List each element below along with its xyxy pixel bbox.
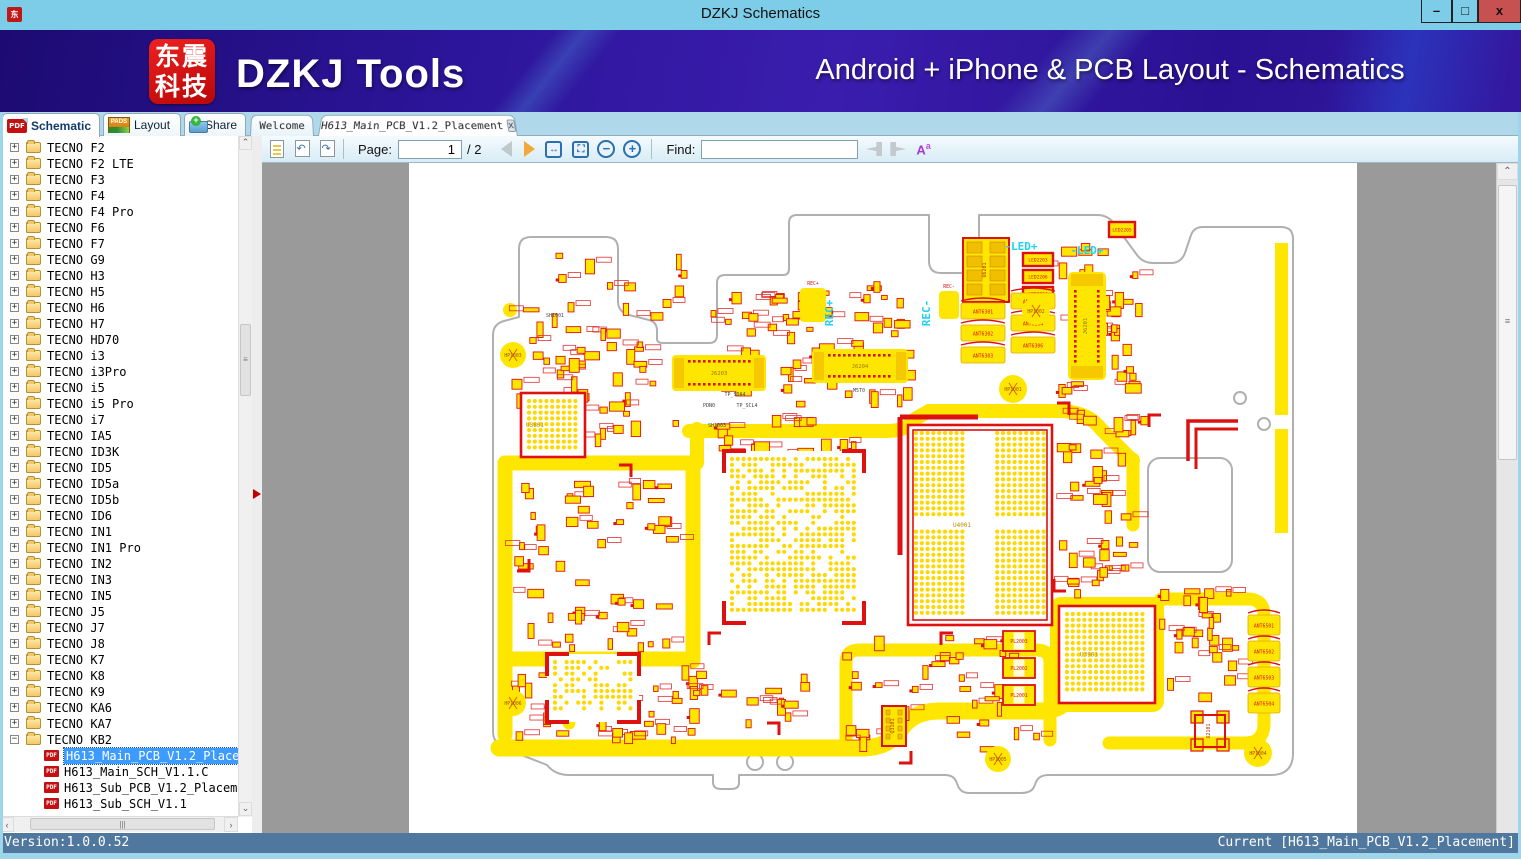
doc-tab-welcome[interactable]: Welcome <box>250 115 314 136</box>
scroll-right-icon[interactable]: › <box>224 817 238 832</box>
tab-layout[interactable]: PADS Layout <box>103 113 181 136</box>
tree-folder-item[interactable]: +TECNO i3Pro <box>0 364 238 380</box>
folder-icon <box>26 494 41 505</box>
svg-text:ANT6502: ANT6502 <box>1254 650 1274 656</box>
expand-icon[interactable]: + <box>10 351 19 360</box>
folder-icon <box>26 302 41 313</box>
tree-folder-item[interactable]: +TECNO IN2 <box>0 556 238 572</box>
expand-icon[interactable]: + <box>10 223 19 232</box>
rotate-right-icon[interactable] <box>317 139 337 159</box>
pdf-viewer-area[interactable]: U4001U3901U3801J6203J6204J6201U6201LED22… <box>262 163 1496 833</box>
folder-icon <box>26 734 41 745</box>
folder-icon <box>26 542 41 553</box>
folder-label: TECNO i5 <box>47 380 105 396</box>
tree-file-item[interactable]: PDFH613_Main_SCH_V1.1.C <box>0 764 238 780</box>
tree-folder-item[interactable]: −TECNO KB2 <box>0 732 238 748</box>
svg-text:-LED+: -LED+ <box>1070 244 1103 257</box>
svg-text:ANT6303: ANT6303 <box>973 354 993 360</box>
tree-folder-item[interactable]: +TECNO H5 <box>0 284 238 300</box>
svg-text:ANT6306: ANT6306 <box>1023 344 1043 350</box>
tree-folder-item[interactable]: +TECNO F3 <box>0 172 238 188</box>
folder-icon <box>26 670 41 681</box>
expand-icon[interactable]: + <box>10 655 19 664</box>
folder-label: TECNO F4 <box>47 188 105 204</box>
svg-text:LED2203: LED2203 <box>1028 258 1048 264</box>
zoom-out-button[interactable]: − <box>597 140 615 158</box>
expand-icon[interactable]: + <box>10 527 19 536</box>
folder-label: TECNO J5 <box>47 604 105 620</box>
tab-schematic[interactable]: PDF Schematic <box>2 113 100 137</box>
model-tree-panel: +TECNO F2+TECNO F2 LTE+TECNO F3+TECNO F4… <box>0 136 252 833</box>
tree-folder-item[interactable]: +TECNO i5 <box>0 380 238 396</box>
brand-title: DZKJ Tools <box>236 52 465 97</box>
minimize-button[interactable]: – <box>1421 0 1452 23</box>
folder-icon <box>26 558 41 569</box>
folder-label: TECNO J8 <box>47 636 105 652</box>
sidebar-vertical-scrollbar[interactable]: ⌃ ≡ ⌄ <box>238 136 252 817</box>
expand-icon[interactable]: + <box>10 559 19 568</box>
folder-icon <box>26 254 41 265</box>
selected-file-label: H613_Main_PCB_V1.2_Placement <box>64 748 252 764</box>
tab-strip: PDF Schematic PADS Layout + Share Welcom… <box>0 112 1521 136</box>
brand-banner: 东震科技 DZKJ Tools Android + iPhone & PCB L… <box>0 30 1521 112</box>
tree-folder-item[interactable]: +TECNO ID3K <box>0 444 238 460</box>
svg-text:U3801: U3801 <box>526 422 544 429</box>
folder-icon <box>26 286 41 297</box>
svg-text:PDN0: PDN0 <box>703 403 715 409</box>
folder-label: TECNO K9 <box>47 684 105 700</box>
tree-folder-item[interactable]: +TECNO F2 LTE <box>0 156 238 172</box>
expand-icon[interactable]: + <box>10 543 19 552</box>
tree-folder-item[interactable]: +TECNO IN5 <box>0 588 238 604</box>
folder-label: TECNO H3 <box>47 268 105 284</box>
folder-label: TECNO K8 <box>47 668 105 684</box>
folder-label: TECNO F4 Pro <box>47 204 134 220</box>
tree-folder-item[interactable]: +TECNO H7 <box>0 316 238 332</box>
tree-folder-item[interactable]: +TECNO F4 Pro <box>0 204 238 220</box>
tree-folder-item[interactable]: +TECNO IA5 <box>0 428 238 444</box>
tree-folder-item[interactable]: +TECNO ID5 <box>0 460 238 476</box>
expand-icon[interactable]: + <box>10 143 19 152</box>
folder-label: TECNO G9 <box>47 252 105 268</box>
expand-icon[interactable]: + <box>10 255 19 264</box>
find-previous-icon[interactable] <box>866 142 882 156</box>
expand-icon[interactable]: + <box>10 159 19 168</box>
doc-tab-label: Welcome <box>259 119 305 132</box>
tree-folder-item[interactable]: +TECNO IN3 <box>0 572 238 588</box>
expand-icon[interactable]: + <box>10 239 19 248</box>
title-bar[interactable]: 东 DZKJ Schematics – □ x <box>0 0 1521 30</box>
svg-text:SH1001: SH1001 <box>546 313 564 319</box>
doc-tab-current[interactable]: H613_Main_PCB_V1.2_Placement x <box>318 115 518 136</box>
folder-icon <box>26 446 41 457</box>
pdf-file-icon: PDF <box>44 782 59 793</box>
file-label: H613_Sub_SCH_V1.1 <box>64 796 187 812</box>
folder-icon <box>26 430 41 441</box>
tree-folder-item[interactable]: +TECNO F6 <box>0 220 238 236</box>
tree-folder-item[interactable]: +TECNO IN1 <box>0 524 238 540</box>
svg-text:ANT6301: ANT6301 <box>973 310 993 316</box>
folder-label: TECNO HD70 <box>47 332 119 348</box>
tree-folder-item[interactable]: +TECNO F4 <box>0 188 238 204</box>
expand-icon[interactable]: + <box>10 415 19 424</box>
tree-folder-item[interactable]: +TECNO J5 <box>0 604 238 620</box>
tree-folder-item[interactable]: +TECNO ID5b <box>0 492 238 508</box>
folder-label: TECNO ID5a <box>47 476 119 492</box>
svg-text:ANT6501: ANT6501 <box>1254 624 1274 630</box>
svg-text:ANT6302: ANT6302 <box>973 332 993 338</box>
tree-file-item[interactable]: PDFH613_Sub_PCB_V1.2_Placement <box>0 780 238 796</box>
previous-page-button[interactable] <box>501 141 512 157</box>
tree-folder-item[interactable]: +TECNO i5 Pro <box>0 396 238 412</box>
pdf-file-icon: PDF <box>44 766 59 777</box>
folder-label: TECNO ID6 <box>47 508 112 524</box>
tree-folder-item[interactable]: +TECNO J8 <box>0 636 238 652</box>
svg-text:HP1005: HP1005 <box>989 757 1006 763</box>
tree-folder-item[interactable]: +TECNO F2 <box>0 140 238 156</box>
folder-icon <box>26 350 41 361</box>
svg-text:SH1003: SH1003 <box>708 423 726 429</box>
expand-icon[interactable]: + <box>10 271 19 280</box>
fit-width-icon[interactable]: ↔ <box>545 141 562 158</box>
folder-icon <box>26 638 41 649</box>
tree-file-item[interactable]: PDFH613_Sub_SCH_V1.1 <box>0 796 238 812</box>
folder-icon <box>26 462 41 473</box>
rotate-left-icon[interactable] <box>292 139 312 159</box>
tree-folder-item[interactable]: +TECNO J7 <box>0 620 238 636</box>
file-label: H613_Sub_PCB_V1.2_Placement <box>64 780 252 796</box>
match-case-icon[interactable]: Aa <box>916 141 930 157</box>
folder-icon <box>26 526 41 537</box>
folder-label: TECNO H7 <box>47 316 105 332</box>
expand-icon[interactable]: + <box>10 623 19 632</box>
tree-folder-item[interactable]: +TECNO F7 <box>0 236 238 252</box>
folder-icon <box>26 142 41 153</box>
folder-icon <box>26 590 41 601</box>
tree-folder-item[interactable]: +TECNO IN1 Pro <box>0 540 238 556</box>
window-border <box>0 112 3 853</box>
expand-icon[interactable]: + <box>10 367 19 376</box>
tree-folder-item[interactable]: +TECNO H6 <box>0 300 238 316</box>
pdf-icon: PDF <box>7 119 27 133</box>
folder-icon <box>26 382 41 393</box>
folder-icon <box>26 414 41 425</box>
next-page-button[interactable] <box>524 141 535 157</box>
svg-text:ANT6503: ANT6503 <box>1254 676 1274 682</box>
folder-label: TECNO F7 <box>47 236 105 252</box>
folder-label: TECNO ID3K <box>47 444 119 460</box>
tree-folder-item[interactable]: +TECNO H3 <box>0 268 238 284</box>
folder-icon <box>26 318 41 329</box>
folder-label: TECNO KA7 <box>47 716 112 732</box>
folder-icon <box>26 334 41 345</box>
tab-label: Layout <box>134 118 170 132</box>
folder-label: TECNO i7 <box>47 412 105 428</box>
svg-text:Q3101: Q3101 <box>890 718 896 733</box>
expand-icon[interactable]: + <box>10 319 19 328</box>
svg-text:PL2001: PL2001 <box>1010 693 1027 699</box>
svg-text:REC-: REC- <box>943 284 955 290</box>
scroll-down-icon[interactable]: ⌄ <box>239 802 252 816</box>
folder-icon <box>26 238 41 249</box>
find-next-icon[interactable] <box>890 142 906 156</box>
svg-text:M5T0: M5T0 <box>853 388 865 394</box>
version-text: Version:1.0.0.52 <box>4 833 129 853</box>
dzkj-logo: 东震科技 <box>149 39 215 104</box>
tree-folder-item[interactable]: +TECNO ID5a <box>0 476 238 492</box>
svg-text:J6204: J6204 <box>852 364 869 370</box>
folder-label: TECNO F6 <box>47 220 105 236</box>
svg-text:X2101: X2101 <box>1206 723 1212 738</box>
expand-icon[interactable]: + <box>10 511 19 520</box>
tree-folder-item[interactable]: +TECNO K8 <box>0 668 238 684</box>
folder-icon <box>26 510 41 521</box>
folder-label: TECNO F3 <box>47 172 105 188</box>
find-input[interactable] <box>701 140 858 159</box>
scroll-up-icon[interactable]: ⌃ <box>1497 163 1518 180</box>
expand-icon[interactable]: + <box>10 719 19 728</box>
expand-icon[interactable]: + <box>10 591 19 600</box>
folder-label: TECNO i5 Pro <box>47 396 134 412</box>
svg-text:REC+: REC+ <box>823 299 836 326</box>
svg-text:HP1006: HP1006 <box>504 701 521 707</box>
tree-folder-item[interactable]: +TECNO KA6 <box>0 700 238 716</box>
expand-icon[interactable]: + <box>10 191 19 200</box>
folder-icon <box>26 718 41 729</box>
pdf-file-icon: PDF <box>44 750 59 761</box>
zoom-in-button[interactable]: + <box>623 140 641 158</box>
page-label: Page: <box>358 142 392 157</box>
single-page-icon[interactable] <box>267 139 287 159</box>
tree-folder-item[interactable]: +TECNO G9 <box>0 252 238 268</box>
viewer-vertical-scrollbar[interactable]: ⌃ ≡ <box>1496 163 1518 833</box>
folder-icon <box>26 478 41 489</box>
svg-text:ANT6504: ANT6504 <box>1254 702 1274 708</box>
pdf-toolbar: Page: / 2 ↔ ⛶ − + Find: Aa <box>262 136 1518 163</box>
svg-text:U4001: U4001 <box>953 522 971 529</box>
folder-label: TECNO IN2 <box>47 556 112 572</box>
tab-label: Share <box>205 118 237 132</box>
folder-icon <box>26 158 41 169</box>
pdf-page[interactable]: U4001U3901U3801J6203J6204J6201U6201LED22… <box>409 163 1357 833</box>
folder-tree: +TECNO F2+TECNO F2 LTE+TECNO F3+TECNO F4… <box>0 140 238 812</box>
expand-icon[interactable]: + <box>10 607 19 616</box>
tree-folder-item[interactable]: +TECNO i3 <box>0 348 238 364</box>
expand-icon[interactable]: + <box>10 495 19 504</box>
folder-icon <box>26 702 41 713</box>
collapse-icon[interactable]: − <box>10 735 19 744</box>
expand-icon[interactable]: + <box>10 175 19 184</box>
close-tab-icon[interactable]: x <box>506 119 516 132</box>
folder-label: TECNO IN1 <box>47 524 112 540</box>
folder-label: TECNO F2 LTE <box>47 156 134 172</box>
scrollbar-thumb[interactable]: ≡ <box>240 324 251 396</box>
svg-text:TP_SDA4: TP_SDA4 <box>724 392 745 398</box>
expand-icon[interactable]: + <box>10 303 19 312</box>
folder-icon <box>26 574 41 585</box>
expand-icon[interactable]: + <box>10 463 19 472</box>
svg-text:REC+: REC+ <box>807 281 819 287</box>
folder-icon <box>26 606 41 617</box>
folder-icon <box>26 398 41 409</box>
tab-label: Schematic <box>31 119 91 133</box>
svg-text:J6203: J6203 <box>711 371 728 377</box>
folder-icon <box>26 366 41 377</box>
folder-label: TECNO KA6 <box>47 700 112 716</box>
svg-text:U3901: U3901 <box>1080 652 1098 659</box>
folder-label: TECNO ID5 <box>47 460 112 476</box>
expand-icon[interactable]: + <box>10 447 19 456</box>
tree-folder-item[interactable]: +TECNO K7 <box>0 652 238 668</box>
tree-folder-item[interactable]: +TECNO HD70 <box>0 332 238 348</box>
current-document-text: Current [H613_Main_PCB_V1.2_Placement] <box>1218 833 1515 853</box>
folder-label: TECNO H5 <box>47 284 105 300</box>
expand-icon[interactable]: + <box>10 703 19 712</box>
pdf-file-icon: PDF <box>44 798 59 809</box>
svg-text:LED2206: LED2206 <box>1028 275 1048 281</box>
expand-icon[interactable]: + <box>10 335 19 344</box>
folder-icon <box>26 174 41 185</box>
expand-icon[interactable]: + <box>10 479 19 488</box>
folder-icon <box>26 270 41 281</box>
svg-text:HP1003: HP1003 <box>504 353 521 359</box>
expand-icon[interactable]: + <box>10 431 19 440</box>
folder-label: TECNO IN3 <box>47 572 112 588</box>
find-label: Find: <box>666 142 695 157</box>
svg-text:HP1001: HP1001 <box>1004 387 1021 393</box>
expand-icon[interactable]: + <box>10 399 19 408</box>
pcb-placement-drawing: U4001U3901U3801J6203J6204J6201U6201LED22… <box>409 163 1357 833</box>
status-bar: Version:1.0.0.52 Current [H613_Main_PCB_… <box>0 833 1521 853</box>
expand-icon[interactable]: + <box>10 207 19 216</box>
folder-label: TECNO i3 <box>47 348 105 364</box>
application-window: 东 DZKJ Schematics – □ x 东震科技 DZKJ Tools … <box>0 0 1521 859</box>
pads-icon: PADS <box>108 117 130 133</box>
svg-text:TP_SCL4: TP_SCL4 <box>736 403 757 409</box>
folder-label: TECNO i3Pro <box>47 364 126 380</box>
svg-text:J6201: J6201 <box>1083 318 1089 335</box>
sidebar-horizontal-scrollbar[interactable]: ‹ ||| › <box>0 816 238 832</box>
svg-text:U6201: U6201 <box>982 262 988 277</box>
tree-folder-item[interactable]: +TECNO i7 <box>0 412 238 428</box>
folder-icon <box>26 206 41 217</box>
folder-label: TECNO H6 <box>47 300 105 316</box>
close-button[interactable]: x <box>1478 0 1521 23</box>
svg-text:REC-: REC- <box>920 300 933 327</box>
tree-folder-item[interactable]: +TECNO K9 <box>0 684 238 700</box>
scrollbar-thumb[interactable]: ||| <box>30 818 215 830</box>
panel-splitter[interactable] <box>252 136 262 833</box>
folder-label: TECNO KB2 <box>47 732 112 748</box>
svg-text:PL2003: PL2003 <box>1010 639 1027 645</box>
expand-icon[interactable]: + <box>10 639 19 648</box>
folder-icon <box>26 622 41 633</box>
folder-label: TECNO IN1 Pro <box>47 540 141 556</box>
doc-tab-label: H613_Main_PCB_V1.2_Placement <box>320 119 504 132</box>
brand-tagline: Android + iPhone & PCB Layout - Schemati… <box>790 54 1430 87</box>
fit-page-icon[interactable]: ⛶ <box>572 141 589 158</box>
folder-icon <box>26 686 41 697</box>
file-label: H613_Main_SCH_V1.1.C <box>64 764 209 780</box>
window-border <box>0 853 1521 859</box>
page-number-input[interactable] <box>398 140 462 159</box>
folder-label: TECNO ID5b <box>47 492 119 508</box>
folder-label: TECNO J7 <box>47 620 105 636</box>
expand-icon[interactable]: + <box>10 671 19 680</box>
folder-icon <box>26 654 41 665</box>
tree-folder-item[interactable]: +TECNO ID6 <box>0 508 238 524</box>
page-total: / 2 <box>467 142 481 157</box>
tree-file-item[interactable]: PDFH613_Main_PCB_V1.2_Placement <box>0 748 238 764</box>
tab-share[interactable]: + Share <box>184 113 246 136</box>
svg-text:LED2205: LED2205 <box>1112 228 1132 234</box>
svg-text:-LED+: -LED+ <box>1004 240 1037 253</box>
tree-folder-item[interactable]: +TECNO KA7 <box>0 716 238 732</box>
folder-label: TECNO F2 <box>47 140 105 156</box>
window-title: DZKJ Schematics <box>0 5 1521 22</box>
maximize-button[interactable]: □ <box>1452 0 1478 23</box>
svg-text:HP1002: HP1002 <box>1027 309 1044 315</box>
expand-icon[interactable]: + <box>10 687 19 696</box>
svg-text:HP1004: HP1004 <box>1249 751 1266 757</box>
expand-icon[interactable]: + <box>10 575 19 584</box>
share-folder-icon: + <box>189 118 201 133</box>
folder-icon <box>26 190 41 201</box>
folder-label: TECNO IN5 <box>47 588 112 604</box>
expand-icon[interactable]: + <box>10 287 19 296</box>
svg-text:PL2002: PL2002 <box>1010 666 1027 672</box>
scroll-up-icon[interactable]: ⌃ <box>239 136 252 150</box>
folder-label: TECNO IA5 <box>47 428 112 444</box>
folder-icon <box>26 222 41 233</box>
scrollbar-thumb[interactable]: ≡ <box>1498 185 1517 460</box>
expand-icon[interactable]: + <box>10 383 19 392</box>
folder-label: TECNO K7 <box>47 652 105 668</box>
